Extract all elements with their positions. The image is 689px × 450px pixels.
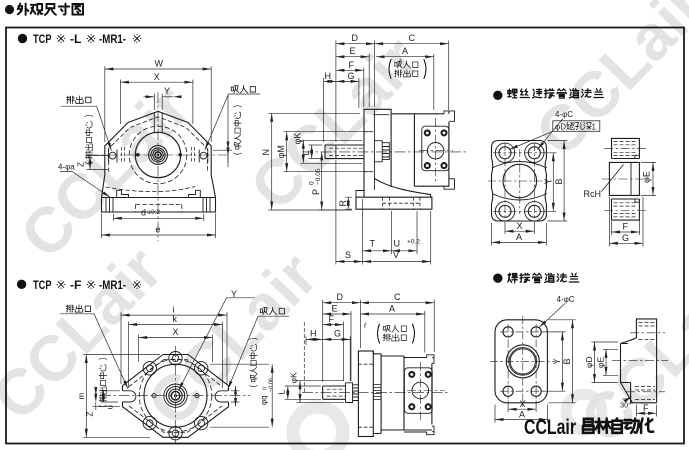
svg-text:1: 1 (592, 122, 597, 131)
svg-text:D: D (352, 33, 359, 43)
svg-text:-MR1-: -MR1- (99, 34, 126, 46)
svg-text:E: E (350, 46, 356, 56)
svg-text:G: G (622, 233, 629, 243)
svg-text:A: A (402, 46, 408, 56)
svg-text:E: E (332, 303, 338, 313)
svg-text:V: V (393, 250, 399, 260)
svg-text:H: H (310, 329, 317, 339)
svg-text:TCP: TCP (33, 280, 52, 292)
svg-text:φD: φD (584, 356, 594, 368)
svg-text:T: T (370, 238, 376, 248)
svg-text:e: e (156, 225, 161, 235)
svg-text:A: A (516, 232, 522, 242)
svg-text:L: L (301, 150, 311, 155)
svg-text:4-φC: 4-φC (557, 295, 575, 304)
svg-text:-L: -L (70, 34, 82, 46)
svg-text:φq: φq (260, 395, 269, 405)
svg-text:X: X (173, 327, 179, 337)
svg-text:C: C (394, 292, 401, 302)
svg-text:±0.2: ±0.2 (148, 209, 161, 216)
svg-text:-F: -F (70, 280, 82, 292)
svg-text:R: R (338, 200, 348, 207)
svg-text:A: A (389, 303, 395, 313)
svg-text:i: i (173, 305, 175, 315)
svg-text:φM: φM (276, 145, 286, 158)
svg-text:4-φa: 4-φa (58, 163, 75, 172)
svg-text:W: W (155, 59, 164, 69)
svg-text:Y: Y (543, 178, 553, 184)
svg-text:+0.2: +0.2 (407, 239, 420, 246)
svg-text:F: F (349, 60, 355, 70)
svg-text:φK: φK (289, 372, 299, 384)
svg-text:G: G (334, 329, 341, 339)
svg-text:G: G (348, 71, 355, 81)
svg-text:L: L (277, 390, 287, 395)
svg-text:φD: φD (555, 122, 566, 131)
svg-text:Z: Z (86, 412, 95, 417)
svg-text:Y: Y (164, 86, 170, 96)
svg-text:D: D (337, 292, 344, 302)
svg-text:X: X (154, 72, 160, 82)
svg-text:−0.05: −0.05 (315, 168, 322, 185)
svg-text:X: X (520, 399, 526, 409)
svg-text:CCLair: CCLair (524, 415, 576, 439)
svg-text:−0.06: −0.06 (269, 378, 275, 392)
svg-text:F: F (329, 314, 335, 324)
svg-text:4-φC: 4-φC (555, 110, 573, 119)
svg-text:B: B (554, 178, 564, 184)
svg-text:Y: Y (552, 358, 562, 364)
svg-text:φE: φE (642, 171, 652, 183)
svg-text:F: F (643, 403, 649, 413)
svg-text:C: C (409, 33, 416, 43)
svg-text:N: N (261, 149, 271, 156)
svg-text:m: m (77, 393, 86, 400)
svg-text:TCP: TCP (33, 34, 52, 46)
svg-text:F: F (623, 222, 629, 232)
svg-text:U: U (394, 238, 401, 248)
svg-text:P: P (311, 189, 321, 195)
svg-text:Y: Y (231, 289, 237, 299)
svg-text:S: S (345, 250, 351, 260)
svg-text:d: d (141, 208, 146, 218)
svg-text:Z: Z (77, 162, 86, 167)
svg-text:RcH: RcH (584, 189, 602, 199)
svg-text:B: B (562, 358, 572, 364)
svg-text:k: k (173, 314, 178, 324)
svg-text:φK: φK (293, 133, 303, 145)
svg-text:-MR1-: -MR1- (99, 280, 126, 292)
svg-text:φE: φE (596, 356, 606, 368)
svg-text:30°: 30° (620, 401, 631, 410)
svg-text:X: X (517, 221, 523, 231)
svg-text:H: H (325, 71, 332, 81)
